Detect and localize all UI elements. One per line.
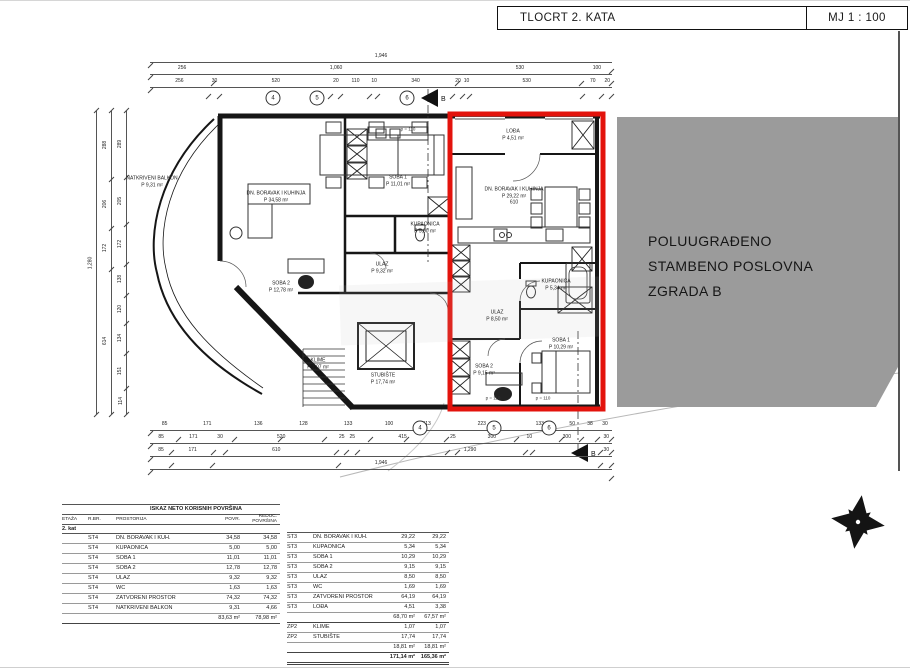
grid-bubble: 6 bbox=[542, 421, 557, 436]
room-label-soba2-st3: SOBA 2P 9,15 m² bbox=[473, 364, 495, 377]
floor-label: 2. kat bbox=[62, 525, 280, 534]
zp2-total-row: 18,81 m² 18,81 m² bbox=[287, 643, 449, 653]
table-row: ST3SOBA 29,159,15 bbox=[287, 563, 449, 573]
room-label-loda: LOĐAP 4,51 m² bbox=[502, 129, 524, 142]
table-row: ST3SOBA 110,2910,29 bbox=[287, 553, 449, 563]
st4-rows: ST4DN. BORAVAK I KUH.34,5834,58ST4KUPAON… bbox=[62, 534, 280, 614]
dim-row-bottom-3: 851716101,29030 bbox=[150, 447, 612, 457]
table-row: ZP2STUBIŠTE17,7417,74 bbox=[287, 633, 449, 643]
room-label-soba2-st4: SOBA 2P 12,78 m² bbox=[269, 281, 293, 294]
room-label-ulaz-st4: ULAZP 9,32 m² bbox=[371, 262, 393, 275]
table-row: ST3KUPAONICA5,345,34 bbox=[287, 543, 449, 553]
dim-col-left-2: 288206172614 bbox=[100, 111, 112, 414]
dim-col-left-3: 289205172138120134151114 bbox=[115, 111, 127, 414]
table-row: ST4SOBA 212,7812,78 bbox=[62, 564, 280, 574]
balcony-arc bbox=[154, 119, 262, 394]
table-row: ST4DN. BORAVAK I KUH.34,5834,58 bbox=[62, 534, 280, 544]
table-row: ST4ZATVORENI PROSTOR74,3274,32 bbox=[62, 594, 280, 604]
table-row: ST3LOĐA4,513,38 bbox=[287, 603, 449, 613]
drawing-sheet: TLOCRT 2. KATA MJ 1 : 100 bbox=[0, 0, 910, 668]
furniture bbox=[230, 122, 590, 401]
parapet-label: p = 110 bbox=[536, 396, 551, 401]
room-label-soba1-st4: SOBA 1P 11,01 m² bbox=[386, 175, 410, 188]
parapet-label: p = 110 bbox=[401, 127, 416, 132]
room-label-soba1-st3: SOBA 1P 10,29 m² bbox=[549, 338, 573, 351]
table-row: ST3DN. BORAVAK I KUH.29,2229,22 bbox=[287, 533, 449, 543]
area-table-header: ETAŽA R.BR. PROSTORIJA POVR. REDUC. POVR… bbox=[62, 515, 280, 525]
table-row: ST3ULAZ8,508,50 bbox=[287, 573, 449, 583]
st3-rows: ST3DN. BORAVAK I KUH.29,2229,22ST3KUPAON… bbox=[287, 533, 449, 613]
room-label-natkriveni-balkon: NATKRIVENI BALKONP 9,31 m² bbox=[126, 176, 177, 189]
table-row: ST3ZATVORENI PROSTOR64,1964,19 bbox=[287, 593, 449, 603]
table-row: ST4NATKRIVENI BALKON9,314,66 bbox=[62, 604, 280, 614]
dim-row-top-total: 1,946 bbox=[150, 53, 612, 63]
area-table-st3: ST3DN. BORAVAK I KUH.29,2229,22ST3KUPAON… bbox=[287, 532, 449, 665]
room-label-klime: KLIMEP 1,07 m² bbox=[307, 358, 329, 371]
room-label-ulaz-st3: ULAZP 8,50 m² bbox=[486, 310, 508, 323]
st4-total-row: 83,63 m² 78,98 m² bbox=[62, 614, 280, 624]
table-row: ST4SOBA 111,0111,01 bbox=[62, 554, 280, 564]
table-row: ZP2KLIME1,071,07 bbox=[287, 623, 449, 633]
st3-total-row: 68,70 m² 67,57 m² bbox=[287, 613, 449, 623]
room-label-kupaonica-st3: KUPAONICAP 5,34 m² bbox=[541, 279, 570, 292]
section-marker-b-top bbox=[421, 89, 438, 107]
room-label-stubiste: STUBIŠTEP 17,74 m² bbox=[371, 373, 395, 386]
area-table-title: ISKAZ NETO KORISNIH POVRŠINA bbox=[62, 505, 280, 515]
dim-row-bottom-total: 1,946 bbox=[150, 460, 612, 470]
dim-row-top-2: 2561,060530100 bbox=[150, 65, 612, 75]
dim-row-top-3: 25630520201101034020105307020 bbox=[150, 78, 612, 88]
grid-bubble: 5 bbox=[310, 91, 325, 106]
area-table-st4: ISKAZ NETO KORISNIH POVRŠINA ETAŽA R.BR.… bbox=[62, 504, 280, 624]
grid-bubble: 5 bbox=[487, 421, 502, 436]
neighbor-building-label: POLUUGRAĐENO STAMBENO POSLOVNA ZGRADA B bbox=[648, 229, 813, 304]
zp2-rows: ZP2KLIME1,071,07ZP2STUBIŠTE17,7417,74 bbox=[287, 623, 449, 643]
room-label-dnevni-st4: DN. BORAVAK I KUHINJAP 34,58 m² bbox=[247, 191, 306, 204]
parapet-label: p = 110 bbox=[486, 396, 501, 401]
compass-rose-icon bbox=[828, 492, 889, 553]
wardrobes bbox=[347, 121, 594, 394]
room-label-kupaonica-st4: KUPAONICAP 5,00 m² bbox=[410, 222, 439, 235]
table-row: ST4WC1,631,63 bbox=[62, 584, 280, 594]
section-label-top: B bbox=[441, 96, 446, 103]
grid-bubble: 4 bbox=[266, 91, 281, 106]
grand-total-row: 171,14 m² 165,36 m² bbox=[287, 653, 449, 665]
table-row: ST4ULAZ9,329,32 bbox=[62, 574, 280, 584]
table-row: ST3WC1,691,69 bbox=[287, 583, 449, 593]
table-row: ST4KUPAONICA5,005,00 bbox=[62, 544, 280, 554]
dim-row-bottom-2: 85171305202525415253001030030 bbox=[150, 434, 612, 444]
grid-bubble: 6 bbox=[400, 91, 415, 106]
dim-col-left-total: 1,280 bbox=[85, 111, 97, 414]
grid-bubble: 4 bbox=[413, 421, 428, 436]
room-label-dnevni-st3: DN. BORAVAK I KUHINJAP 29,22 m² 610 bbox=[485, 186, 544, 206]
